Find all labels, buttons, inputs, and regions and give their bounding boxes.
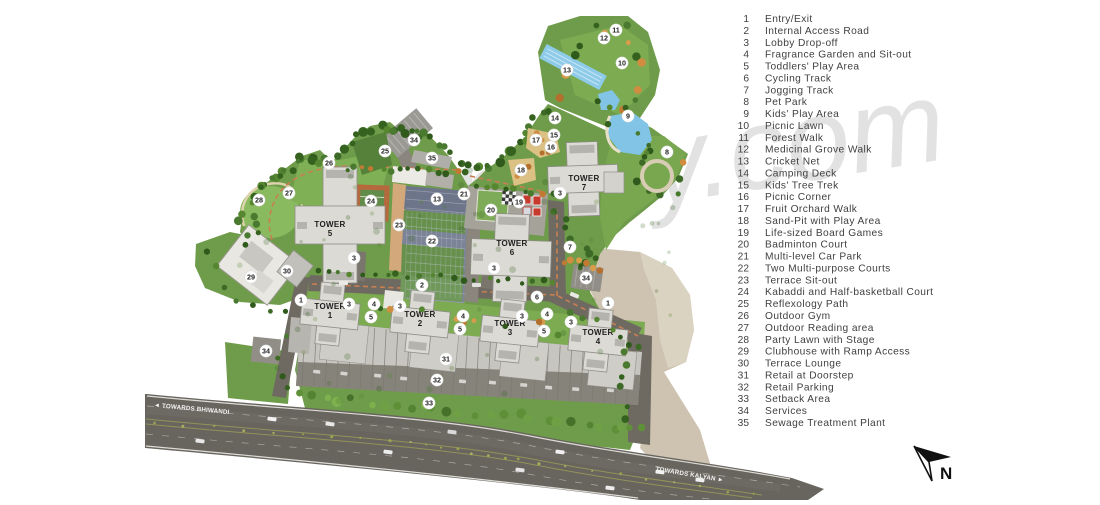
svg-text:29: 29 — [738, 347, 750, 358]
svg-text:TOWER: TOWER — [314, 302, 345, 311]
svg-text:3: 3 — [520, 312, 524, 321]
svg-text:18: 18 — [738, 216, 750, 227]
svg-text:15: 15 — [550, 131, 558, 140]
svg-text:1: 1 — [743, 14, 749, 25]
svg-text:3: 3 — [492, 264, 496, 273]
svg-text:2: 2 — [418, 319, 423, 328]
svg-text:4: 4 — [545, 310, 549, 319]
svg-text:Cycling Track: Cycling Track — [765, 73, 832, 84]
svg-text:Services: Services — [765, 406, 807, 417]
svg-text:29: 29 — [247, 273, 255, 282]
svg-text:Picnic Corner: Picnic Corner — [765, 192, 832, 203]
svg-text:1: 1 — [299, 296, 303, 305]
svg-text:35: 35 — [428, 154, 436, 163]
svg-text:25: 25 — [738, 299, 750, 310]
svg-text:24: 24 — [738, 287, 750, 298]
svg-text:27: 27 — [285, 189, 293, 198]
svg-text:6: 6 — [510, 248, 515, 257]
svg-text:3: 3 — [398, 302, 402, 311]
svg-text:7: 7 — [582, 183, 587, 192]
svg-text:34: 34 — [262, 347, 270, 356]
svg-text:25: 25 — [381, 147, 389, 156]
svg-text:3: 3 — [743, 38, 749, 49]
svg-text:Outdoor Gym: Outdoor Gym — [765, 311, 831, 322]
svg-text:34: 34 — [582, 274, 590, 283]
svg-text:22: 22 — [738, 264, 750, 275]
svg-text:30: 30 — [738, 359, 750, 370]
svg-text:11: 11 — [612, 26, 620, 35]
svg-text:20: 20 — [487, 206, 495, 215]
svg-text:14: 14 — [738, 168, 750, 179]
svg-text:9: 9 — [626, 112, 630, 121]
svg-text:3: 3 — [569, 318, 573, 327]
svg-text:5: 5 — [743, 62, 749, 73]
svg-text:3: 3 — [347, 300, 351, 309]
svg-text:5: 5 — [542, 327, 546, 336]
svg-text:Clubhouse with Ramp Access: Clubhouse with Ramp Access — [765, 347, 910, 358]
svg-text:15: 15 — [738, 180, 750, 191]
svg-text:TOWER: TOWER — [582, 328, 613, 337]
svg-text:Multi-level Car Park: Multi-level Car Park — [765, 252, 862, 263]
svg-text:3: 3 — [508, 328, 513, 337]
svg-text:5: 5 — [328, 229, 333, 238]
svg-text:Picnic Lawn: Picnic Lawn — [765, 121, 824, 132]
svg-text:Sewage Treatment Plant: Sewage Treatment Plant — [765, 418, 885, 429]
svg-text:21: 21 — [460, 190, 468, 199]
svg-text:12: 12 — [738, 145, 750, 156]
svg-text:9: 9 — [743, 109, 749, 120]
svg-text:Toddlers' Play Area: Toddlers' Play Area — [765, 62, 860, 73]
svg-text:26: 26 — [738, 311, 750, 322]
svg-text:Internal Access Road: Internal Access Road — [765, 26, 869, 37]
svg-text:Cricket Net: Cricket Net — [765, 157, 820, 168]
svg-text:22: 22 — [428, 237, 436, 246]
svg-text:Sand-Pit with Play Area: Sand-Pit with Play Area — [765, 216, 881, 227]
svg-text:11: 11 — [738, 133, 749, 144]
svg-text:Jogging Track: Jogging Track — [765, 85, 834, 96]
svg-text:1: 1 — [328, 311, 333, 320]
svg-text:10: 10 — [618, 59, 626, 68]
svg-text:Fruit Orchard Walk: Fruit Orchard Walk — [765, 204, 858, 215]
svg-text:13: 13 — [738, 157, 750, 168]
svg-text:Two Multi-purpose Courts: Two Multi-purpose Courts — [765, 264, 891, 275]
svg-text:13: 13 — [433, 195, 441, 204]
svg-text:Outdoor Reading area: Outdoor Reading area — [765, 323, 874, 334]
svg-text:4: 4 — [596, 337, 601, 346]
svg-text:20: 20 — [738, 240, 750, 251]
svg-text:7: 7 — [743, 85, 749, 96]
svg-text:5: 5 — [369, 313, 373, 322]
svg-text:33: 33 — [425, 399, 433, 408]
svg-text:32: 32 — [738, 382, 750, 393]
svg-text:16: 16 — [547, 143, 555, 152]
svg-text:7: 7 — [568, 243, 572, 252]
svg-text:33: 33 — [738, 394, 750, 405]
svg-text:10: 10 — [738, 121, 750, 132]
svg-text:1: 1 — [606, 299, 610, 308]
svg-text:27: 27 — [738, 323, 750, 334]
svg-text:Reflexology Path: Reflexology Path — [765, 299, 848, 310]
svg-text:Lobby Drop-off: Lobby Drop-off — [765, 38, 838, 49]
svg-text:8: 8 — [743, 97, 749, 108]
svg-text:18: 18 — [517, 166, 525, 175]
svg-text:30: 30 — [283, 267, 291, 276]
svg-text:4: 4 — [372, 300, 376, 309]
svg-text:3: 3 — [558, 189, 562, 198]
svg-text:6: 6 — [535, 293, 539, 302]
svg-text:Retail at Doorstep: Retail at Doorstep — [765, 370, 854, 381]
svg-text:16: 16 — [738, 192, 750, 203]
svg-text:TOWER: TOWER — [496, 239, 527, 248]
svg-text:13: 13 — [563, 66, 571, 75]
svg-text:4: 4 — [743, 50, 749, 61]
svg-text:TOWER: TOWER — [568, 174, 599, 183]
svg-text:Badminton Court: Badminton Court — [765, 240, 847, 251]
svg-text:4: 4 — [461, 312, 465, 321]
svg-text:34: 34 — [410, 136, 418, 145]
svg-text:14: 14 — [551, 114, 559, 123]
svg-text:28: 28 — [255, 196, 263, 205]
svg-text:23: 23 — [395, 221, 403, 230]
svg-text:8: 8 — [665, 148, 669, 157]
svg-text:Pet Park: Pet Park — [765, 97, 808, 108]
svg-text:31: 31 — [442, 355, 450, 364]
svg-text:Camping Deck: Camping Deck — [765, 168, 837, 179]
svg-text:Fragrance Garden and Sit-out: Fragrance Garden and Sit-out — [765, 50, 912, 61]
svg-text:Setback Area: Setback Area — [765, 394, 830, 405]
svg-text:Forest Walk: Forest Walk — [765, 133, 824, 144]
svg-text:3: 3 — [352, 254, 356, 263]
svg-text:Terrace Lounge: Terrace Lounge — [765, 359, 841, 370]
svg-text:Kabaddi and Half-basketball Co: Kabaddi and Half-basketball Court — [765, 287, 933, 298]
svg-text:31: 31 — [738, 370, 750, 381]
svg-text:35: 35 — [738, 418, 750, 429]
svg-text:17: 17 — [738, 204, 750, 215]
svg-text:Retail Parking: Retail Parking — [765, 382, 834, 393]
svg-text:Medicinal Grove Walk: Medicinal Grove Walk — [765, 145, 872, 156]
svg-text:Party Lawn with Stage: Party Lawn with Stage — [765, 335, 875, 346]
svg-text:N: N — [940, 464, 952, 483]
svg-text:28: 28 — [738, 335, 750, 346]
svg-text:21: 21 — [738, 252, 750, 263]
svg-text:TOWER: TOWER — [314, 220, 345, 229]
svg-text:26: 26 — [325, 159, 333, 168]
svg-text:19: 19 — [738, 228, 750, 239]
svg-text:Kids' Play Area: Kids' Play Area — [765, 109, 839, 120]
svg-text:5: 5 — [458, 325, 462, 334]
svg-text:Life-sized Board Games: Life-sized Board Games — [765, 228, 883, 239]
svg-text:6: 6 — [743, 73, 749, 84]
svg-text:32: 32 — [433, 376, 441, 385]
svg-text:Kids' Tree Trek: Kids' Tree Trek — [765, 180, 839, 191]
svg-text:34: 34 — [738, 406, 750, 417]
svg-text:24: 24 — [367, 197, 375, 206]
svg-text:2: 2 — [420, 281, 424, 290]
svg-text:12: 12 — [600, 34, 608, 43]
svg-text:Terrace Sit-out: Terrace Sit-out — [765, 275, 837, 286]
svg-text:17: 17 — [532, 136, 540, 145]
svg-text:Entry/Exit: Entry/Exit — [765, 14, 813, 25]
svg-text:2: 2 — [743, 26, 749, 37]
svg-text:23: 23 — [738, 275, 750, 286]
svg-text:19: 19 — [515, 198, 523, 207]
